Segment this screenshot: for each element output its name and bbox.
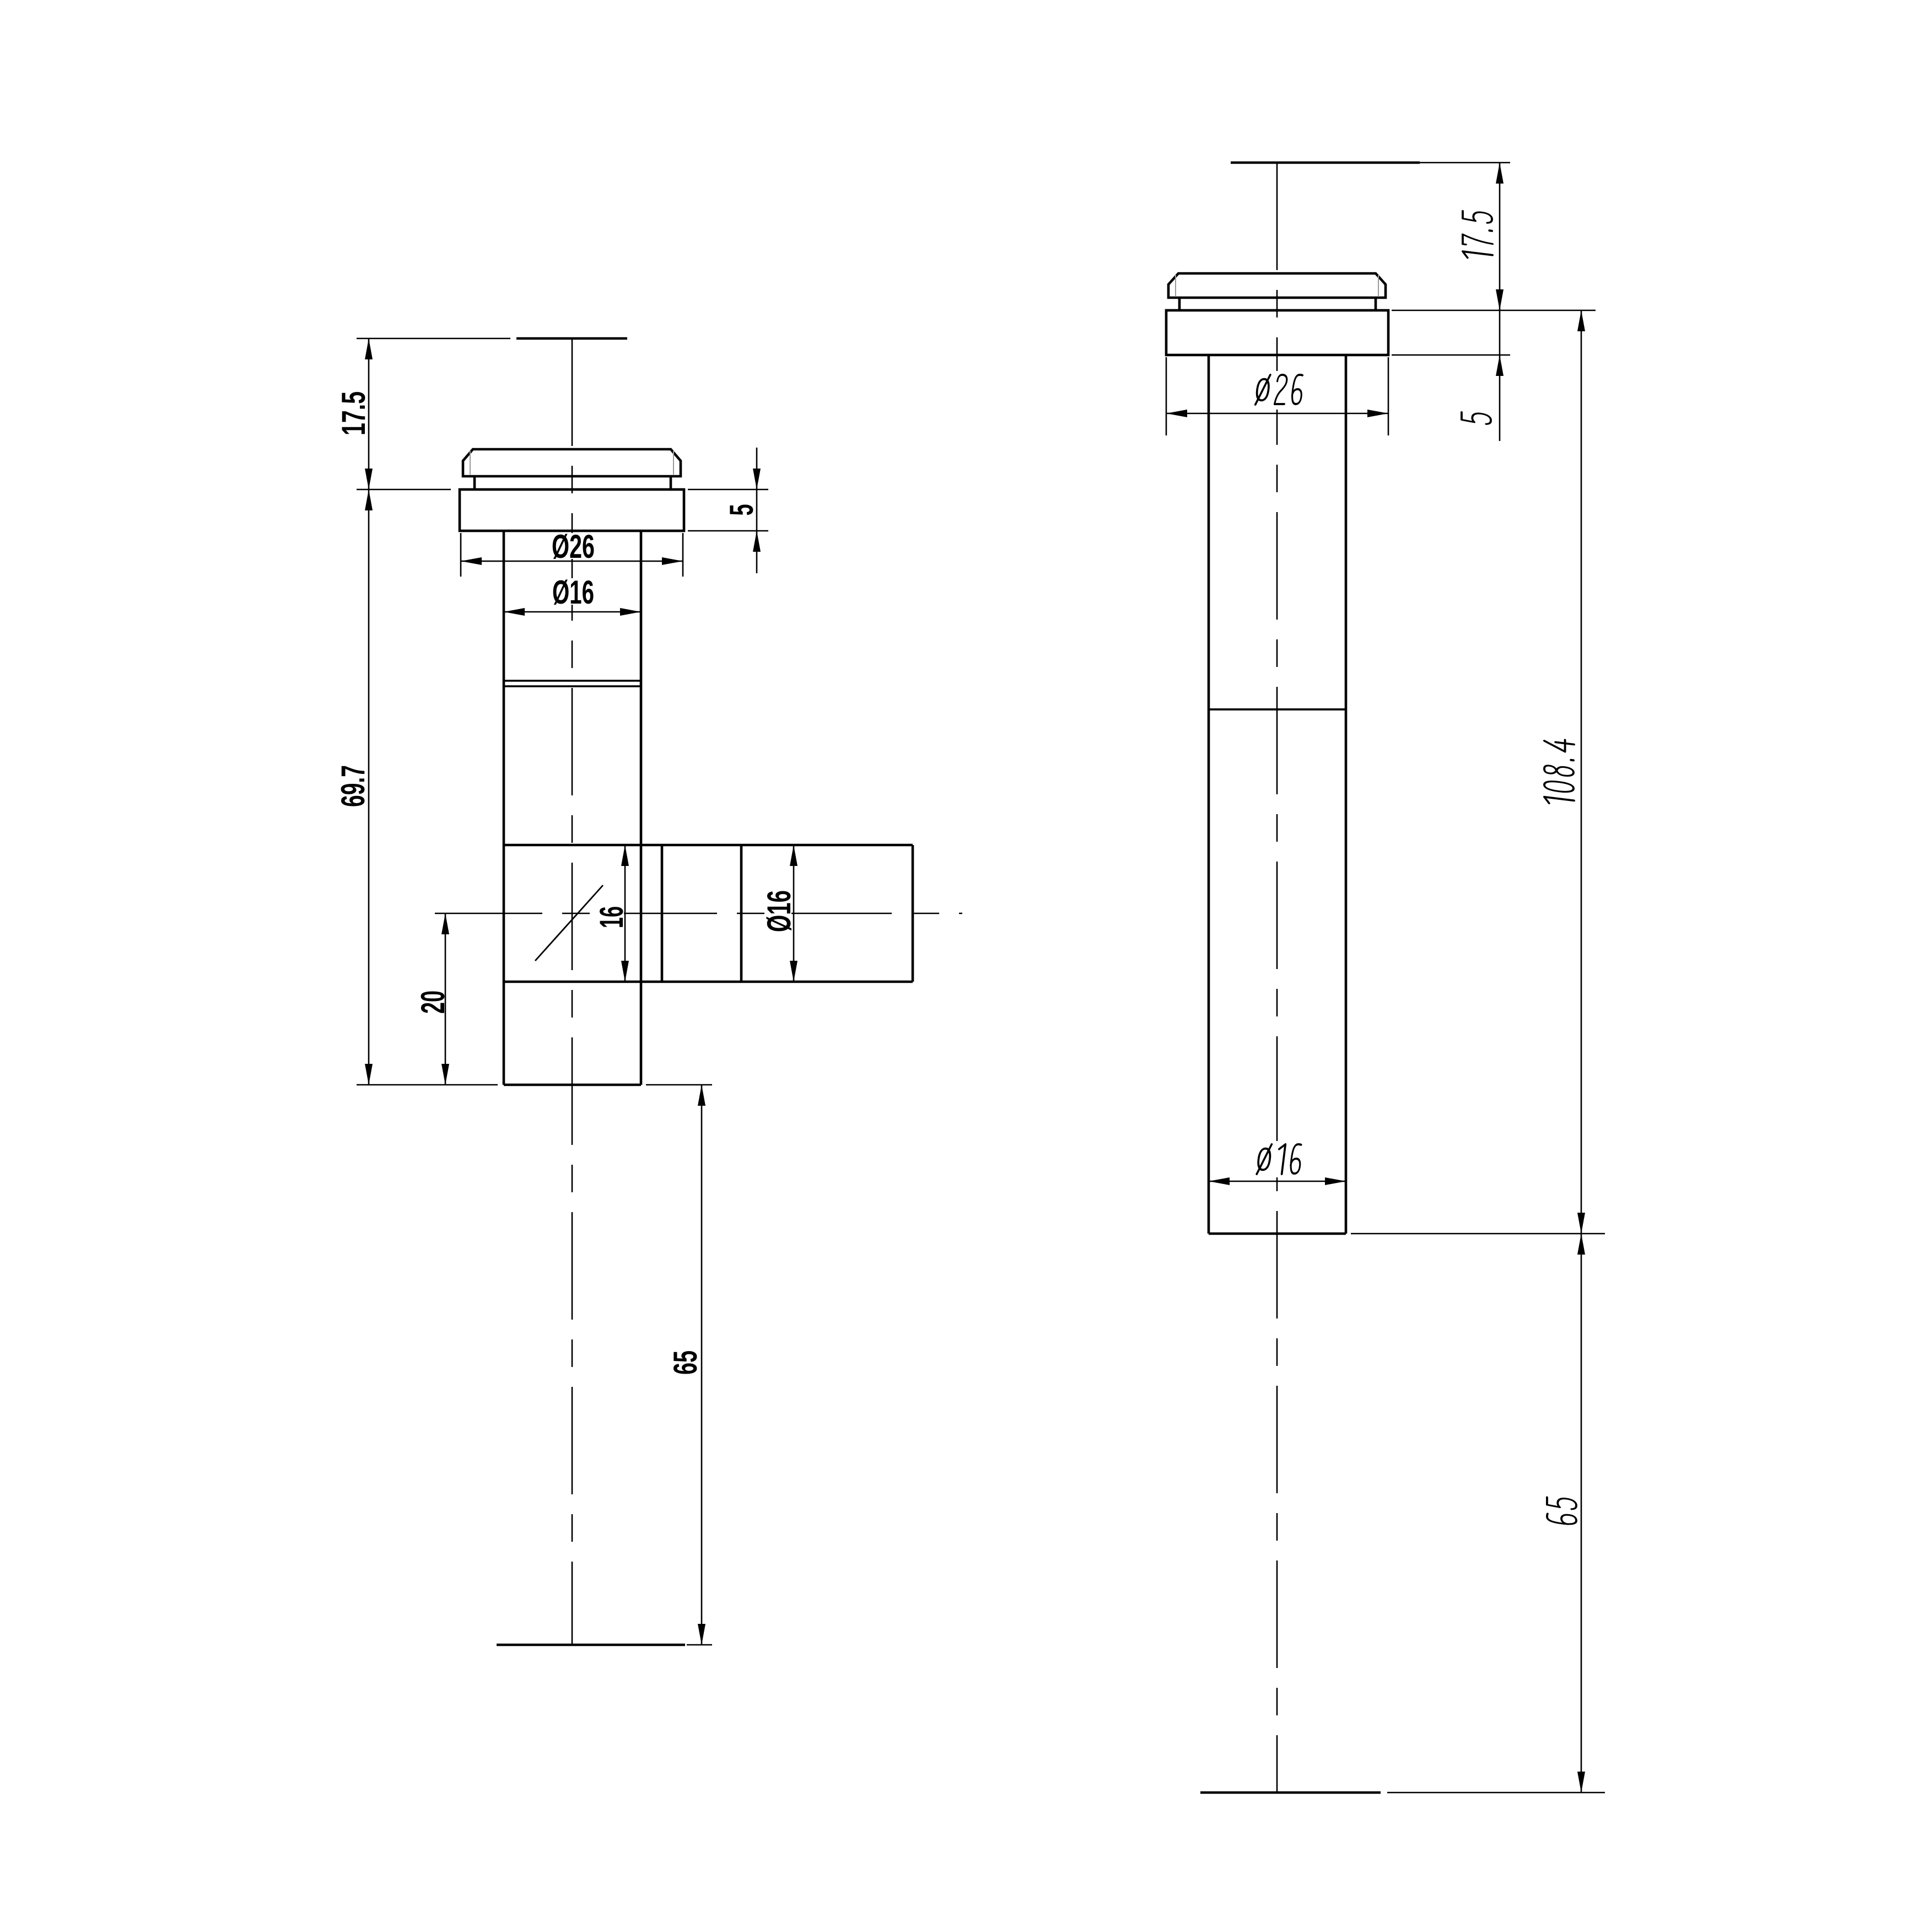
svg-text:Ø26: Ø26 bbox=[552, 528, 595, 565]
svg-text:16: 16 bbox=[593, 906, 630, 928]
svg-text:65: 65 bbox=[667, 1350, 704, 1375]
svg-text:20: 20 bbox=[414, 991, 451, 1014]
svg-text:69.7: 69.7 bbox=[335, 765, 371, 807]
svg-text:5: 5 bbox=[723, 504, 760, 516]
svg-text:Ø16: Ø16 bbox=[761, 890, 798, 932]
svg-text:17.5: 17.5 bbox=[335, 391, 372, 435]
svg-text:Ø16: Ø16 bbox=[552, 574, 594, 611]
